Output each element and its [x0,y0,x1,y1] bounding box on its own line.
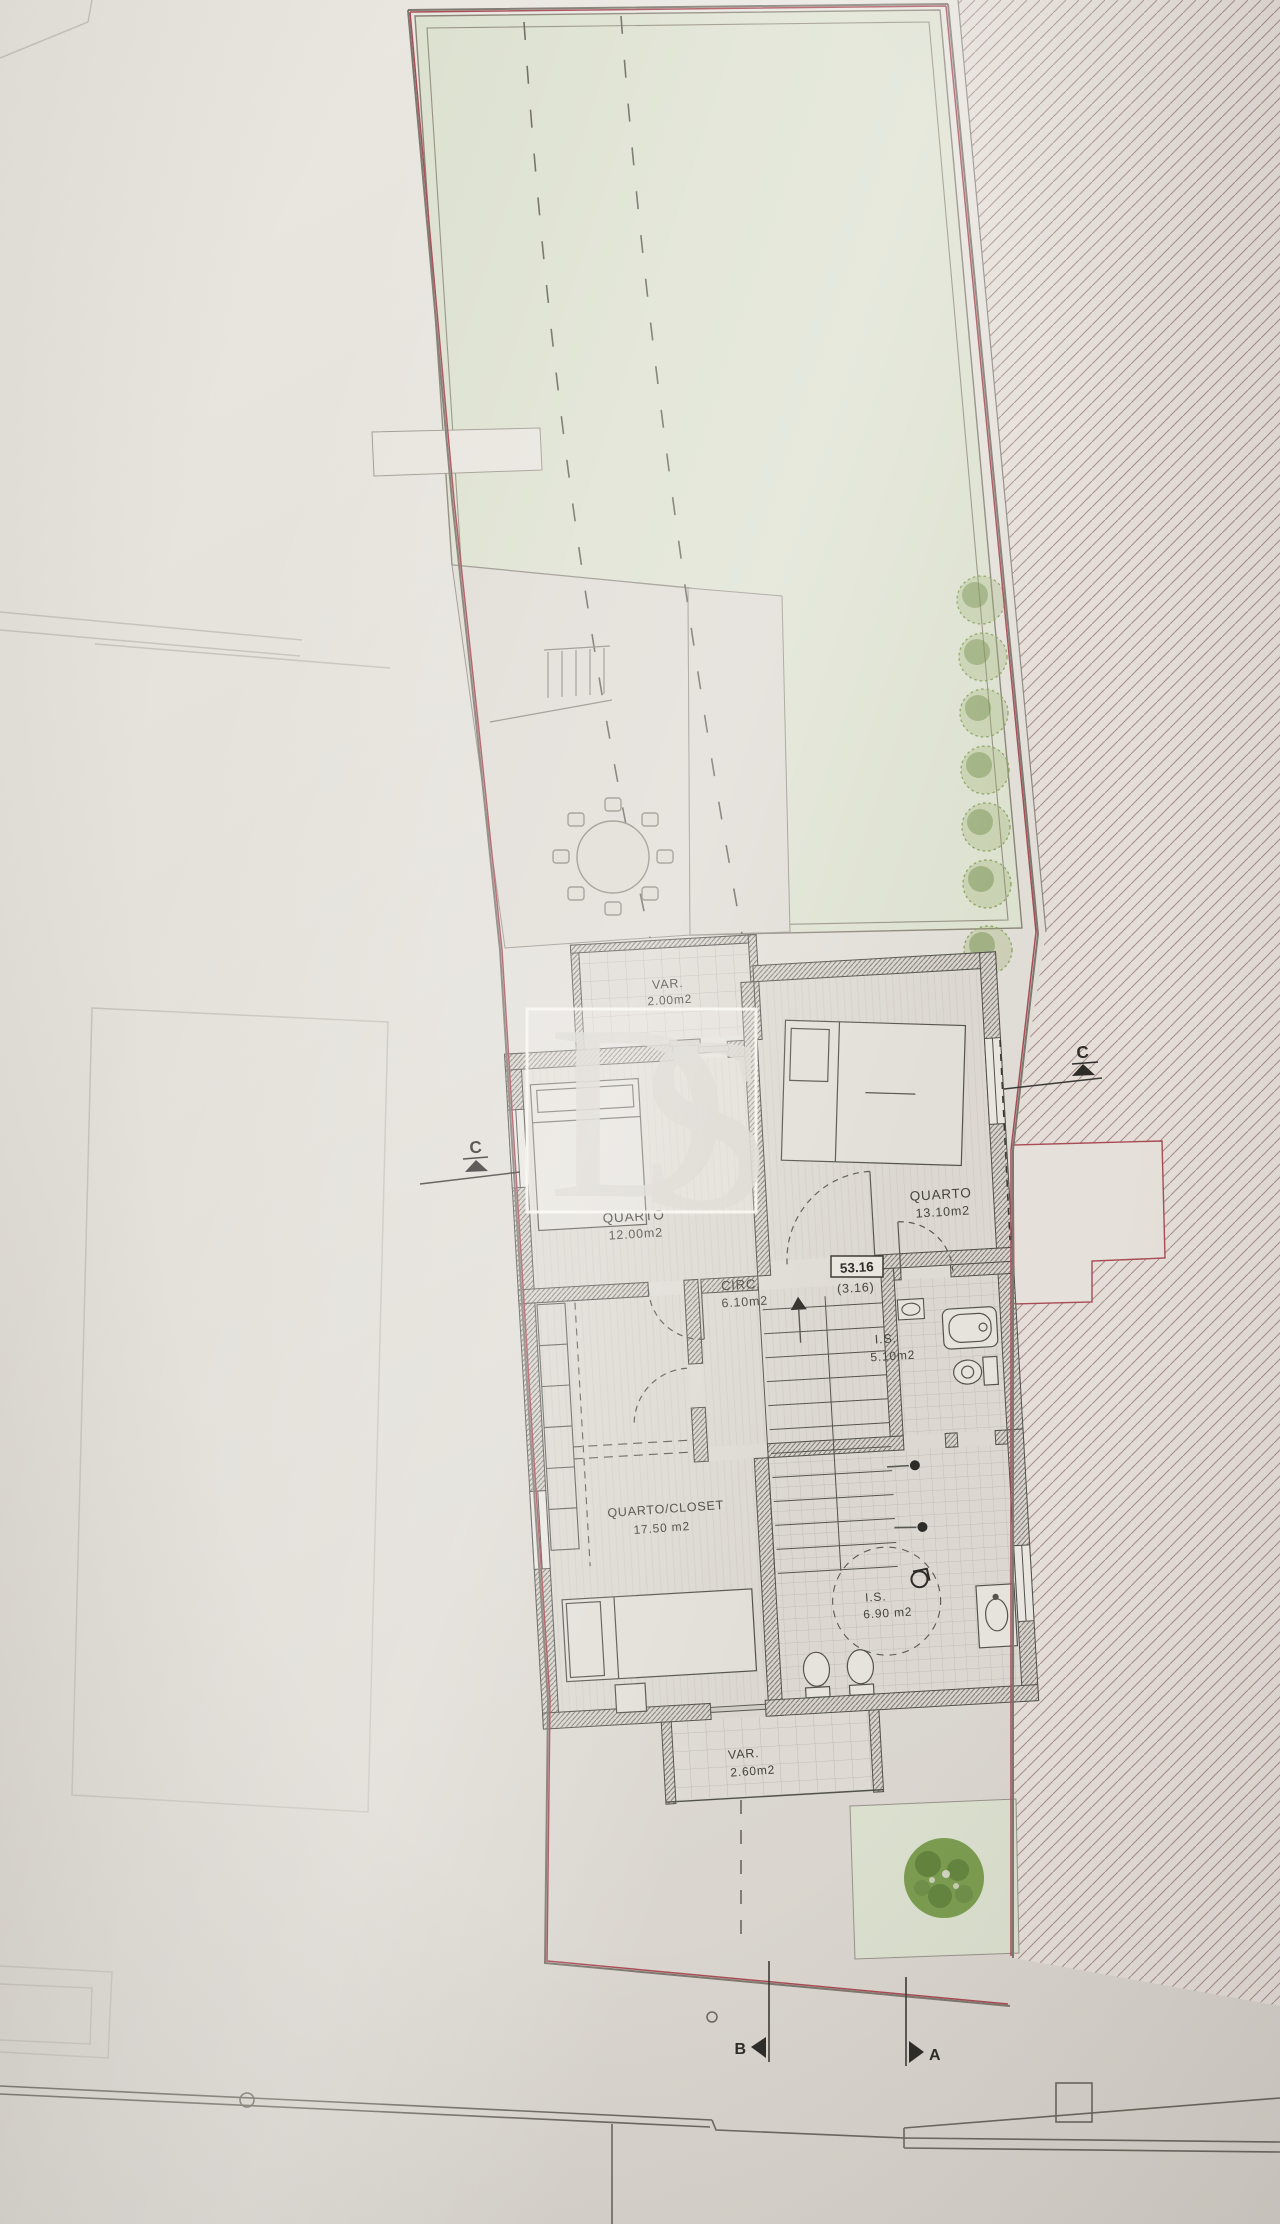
floor-plan-photo: 53.16 (3.16) VAR. 2.00m2 QUARTO 12.00m2 … [0,0,1280,2224]
survey-dot-1 [707,2012,717,2022]
level-value: 53.16 [839,1259,874,1276]
label-circ-name: CIRC. [721,1276,761,1293]
svg-text:B: B [734,2041,746,2058]
sink-upper [897,1299,924,1320]
label-is-lower-name: I.S. [865,1589,887,1604]
bed-quarto-right [781,1020,965,1165]
section-marker-c-left: C [420,1138,520,1184]
label-is-lower-area: 6.90 m2 [863,1605,913,1622]
site-plan-drawing: 53.16 (3.16) VAR. 2.00m2 QUARTO 12.00m2 … [0,0,1280,2224]
street-lines [0,2086,1280,2224]
section-marker-a: A [906,1977,941,2066]
section-marker-b: B [734,1961,769,2062]
label-circ-area: 6.10m2 [721,1294,768,1311]
yard [372,10,1022,974]
neighbor-lot-hatch [958,0,1280,2006]
label-is-upper-area: 5.10m2 [870,1348,916,1365]
paved-path [688,588,790,935]
yard-annex [372,428,542,476]
watermark-letter-s: S [636,986,775,1263]
toilet-lower [803,1652,832,1698]
front-tree [904,1838,984,1918]
svg-text:C: C [1076,1043,1090,1063]
label-is-upper-name: I.S. [874,1331,897,1346]
level-sub-value: (3.16) [837,1280,875,1296]
watermark: D S [527,974,775,1263]
bathtub [942,1306,998,1349]
svg-text:C: C [469,1138,483,1158]
svg-text:A: A [929,2047,941,2064]
bidet-lower [846,1649,875,1695]
label-var-bottom-name: VAR. [728,1746,760,1762]
